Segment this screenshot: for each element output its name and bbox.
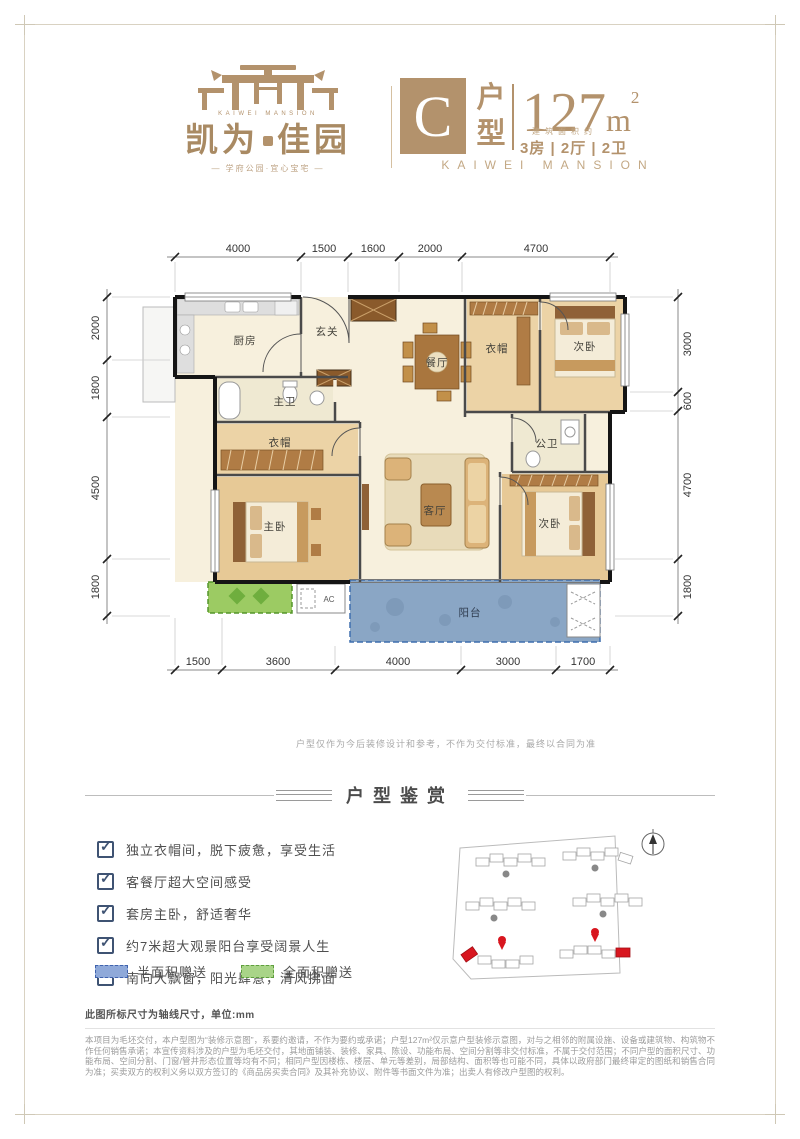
dim-label: 1800 bbox=[90, 376, 102, 400]
dim-label: 2000 bbox=[418, 243, 442, 255]
feature-text: 约7米超大观景阳台享受阔景人生 bbox=[126, 936, 330, 955]
disclaimer-text: 本项目为毛坯交付，本户型图为“装修示意图”，系要约邀请，不作为要约或承诺；户型1… bbox=[85, 1035, 715, 1077]
seal-icon bbox=[263, 136, 273, 146]
legend-item-full: 全面积赠送 bbox=[241, 962, 353, 981]
floorplan-note: 户型仅作为今后装修设计和参考，不作为交付标准，最终以合同为准 bbox=[296, 737, 596, 750]
site-buildings bbox=[461, 848, 642, 968]
corner-mark bbox=[775, 1104, 776, 1124]
corner-mark bbox=[24, 1104, 25, 1124]
legend-item-half: 半面积赠送 bbox=[95, 962, 207, 981]
checkbox-icon bbox=[97, 841, 114, 858]
dim-label: 1600 bbox=[361, 243, 385, 255]
feature-item: 套房主卧，舒适奢华 bbox=[97, 904, 427, 923]
unit-type-char: 型 bbox=[474, 116, 508, 152]
bay-window-gift bbox=[208, 582, 292, 613]
brochure-page: KAIWEI MANSION 凯为佳园 — 学府公园·宜心宝宅 — C 户 型 … bbox=[0, 0, 800, 1139]
logo-title-left: 凯为 bbox=[185, 123, 259, 159]
unit-type-char: 户 bbox=[474, 80, 508, 116]
dim-label: 1500 bbox=[312, 243, 336, 255]
footer: 此图所标尺寸为轴线尺寸，单位:mm 本项目为毛坯交付，本户型图为“装修示意图”，… bbox=[85, 1006, 715, 1077]
half-area-swatch bbox=[95, 965, 128, 978]
dim-label: 2000 bbox=[90, 316, 102, 340]
unit-letter-box: C bbox=[400, 78, 466, 154]
section-title-bar: 户型鉴赏 bbox=[85, 782, 715, 808]
feature-item: 独立衣帽间，脱下疲惫，享受生活 bbox=[97, 840, 427, 859]
logo-en-text: KAIWEI MANSION bbox=[218, 111, 318, 116]
dim-label: 3000 bbox=[496, 656, 520, 668]
unit-type-label: 户 型 bbox=[474, 80, 508, 152]
unit-header: C 户 型 127m2 建筑面积约 3房 | 2厅 | 2卫 KAIWEI MA… bbox=[400, 78, 696, 178]
dim-label: 600 bbox=[682, 392, 694, 410]
area-unit: m bbox=[606, 102, 631, 138]
full-area-swatch bbox=[241, 965, 274, 978]
dim-label: 3000 bbox=[682, 332, 694, 356]
legend-label: 半面积赠送 bbox=[137, 962, 207, 981]
dimension-note: 此图所标尺寸为轴线尺寸，单位:mm bbox=[85, 1006, 715, 1021]
legend-label: 全面积赠送 bbox=[283, 962, 353, 981]
room-label-living: 客厅 bbox=[424, 504, 447, 517]
dim-label: 4500 bbox=[90, 476, 102, 500]
feature-text: 客餐厅超大空间感受 bbox=[126, 872, 252, 891]
dim-label: 1500 bbox=[186, 656, 210, 668]
equipment-platform bbox=[567, 584, 600, 637]
room-label-balcony: 阳台 bbox=[459, 606, 482, 619]
gift-area-legend: 半面积赠送 全面积赠送 bbox=[95, 962, 387, 981]
feature-item: 客餐厅超大空间感受 bbox=[97, 872, 427, 891]
checkbox-icon bbox=[97, 873, 114, 890]
dim-label: 4700 bbox=[682, 473, 694, 497]
dim-label: 4700 bbox=[524, 243, 548, 255]
logo-title-right: 佳园 bbox=[277, 123, 351, 159]
rooms-summary: 3房 | 2厅 | 2卫 bbox=[520, 137, 627, 158]
dim-label: 1800 bbox=[90, 575, 102, 599]
room-label-dining: 餐厅 bbox=[426, 356, 449, 369]
logo-title: 凯为佳园 bbox=[148, 123, 388, 159]
room-label-bath-master: 主卫 bbox=[274, 396, 297, 408]
room-label-kitchen: 厨房 bbox=[234, 334, 257, 347]
room-label-bedroom-bottom: 次卧 bbox=[539, 517, 562, 530]
feature-text: 独立衣帽间，脱下疲惫，享受生活 bbox=[126, 840, 336, 859]
room-label-closet-top: 衣帽 bbox=[486, 342, 509, 355]
corner-mark bbox=[24, 15, 25, 35]
header-divider bbox=[391, 86, 392, 168]
room-label-bedroom-master: 主卧 bbox=[264, 520, 287, 533]
room-label-foyer: 玄关 bbox=[316, 325, 339, 338]
brand-logo: KAIWEI MANSION 凯为佳园 — 学府公园·宜心宝宅 — bbox=[148, 64, 388, 174]
divider-line bbox=[526, 795, 715, 796]
room-label-bath-public: 公卫 bbox=[536, 438, 559, 450]
area-caption: 建筑面积约 bbox=[532, 126, 597, 137]
dim-label: 4000 bbox=[386, 656, 410, 668]
site-mini-map bbox=[448, 826, 698, 1004]
triple-line bbox=[468, 790, 524, 801]
dim-label: 3600 bbox=[266, 656, 290, 668]
ac-platform: AC bbox=[297, 584, 345, 613]
corner-mark bbox=[15, 24, 35, 25]
divider-line bbox=[85, 795, 274, 796]
unit-divider bbox=[512, 84, 514, 150]
section-title: 户型鉴赏 bbox=[346, 782, 454, 808]
dim-label: 1700 bbox=[571, 656, 595, 668]
checkbox-icon bbox=[97, 937, 114, 954]
checkbox-icon bbox=[97, 905, 114, 922]
brand-en-text: KAIWEI MANSION bbox=[400, 158, 696, 172]
room-label-closet-master: 衣帽 bbox=[269, 436, 292, 449]
room-label-bedroom-top: 次卧 bbox=[574, 340, 597, 353]
feature-text: 套房主卧，舒适奢华 bbox=[126, 904, 252, 923]
footer-divider bbox=[85, 1028, 715, 1029]
feature-item: 约7米超大观景阳台享受阔景人生 bbox=[97, 936, 427, 955]
gate-icon: KAIWEI MANSION bbox=[188, 64, 348, 116]
floorplan-drawing: AC bbox=[85, 222, 715, 692]
ac-label: AC bbox=[323, 595, 334, 604]
triple-line bbox=[276, 790, 332, 801]
corner-mark bbox=[775, 15, 776, 35]
logo-tagline: — 学府公园·宜心宝宅 — bbox=[148, 163, 388, 174]
dim-label: 1800 bbox=[682, 575, 694, 599]
compass-icon bbox=[642, 829, 664, 855]
area-sup: 2 bbox=[631, 88, 640, 107]
corner-mark bbox=[15, 1114, 35, 1115]
dim-label: 4000 bbox=[226, 243, 250, 255]
